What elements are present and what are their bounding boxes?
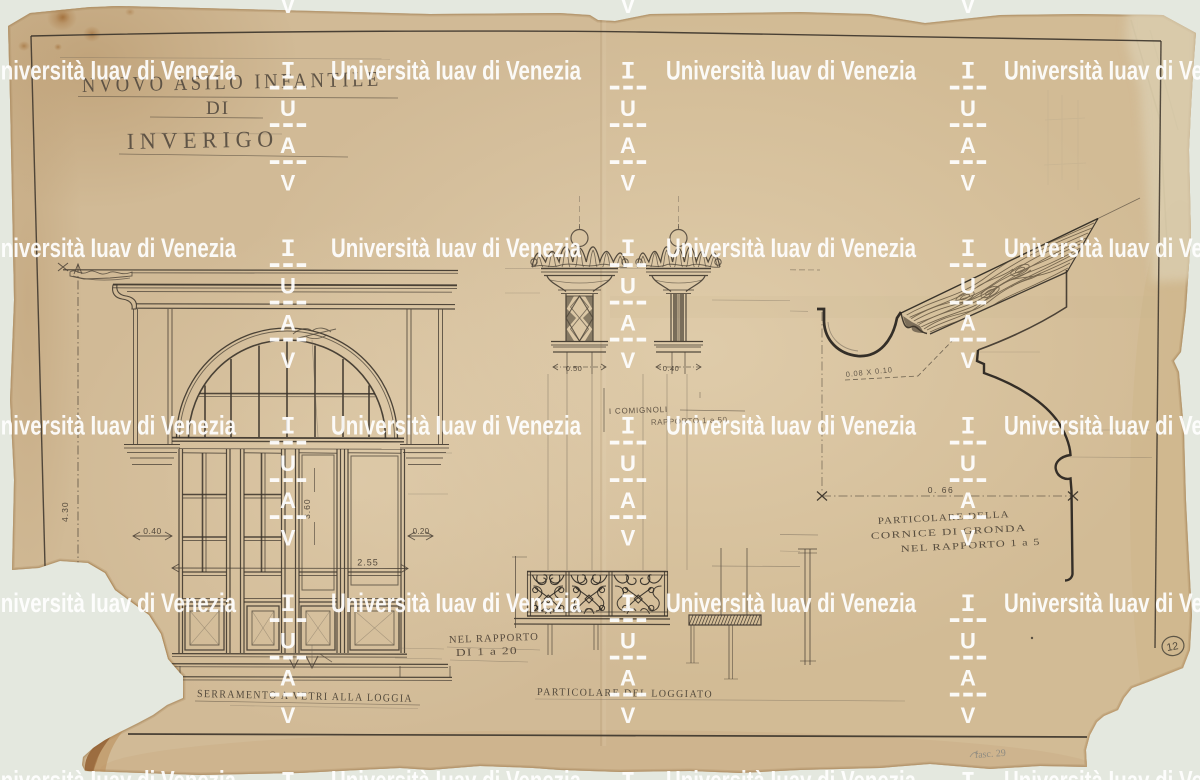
svg-text:Università Iuav di Venezia: Università Iuav di Venezia	[1004, 588, 1200, 618]
svg-text:Università Iuav di Venezia: Università Iuav di Venezia	[0, 766, 237, 780]
svg-text:A: A	[960, 133, 976, 158]
svg-text:V: V	[961, 0, 976, 18]
svg-text:U: U	[280, 274, 296, 299]
svg-text:V: V	[961, 703, 976, 728]
svg-text:A: A	[280, 666, 296, 691]
svg-text:V: V	[961, 171, 976, 196]
svg-text:Università Iuav di Venezia: Università Iuav di Venezia	[1004, 766, 1200, 780]
svg-text:Università Iuav di Venezia: Università Iuav di Venezia	[0, 233, 237, 263]
svg-text:INVERIGO: INVERIGO	[127, 126, 279, 154]
svg-text:U: U	[960, 629, 976, 654]
svg-text:A: A	[280, 311, 296, 336]
svg-text:U: U	[960, 96, 976, 121]
svg-text:I: I	[960, 413, 975, 442]
svg-text:U: U	[960, 451, 976, 476]
svg-text:Università Iuav di Venezia: Università Iuav di Venezia	[1004, 233, 1200, 263]
svg-text:I: I	[280, 58, 295, 87]
svg-text:fasc. 29: fasc. 29	[974, 748, 1006, 761]
svg-text:Università Iuav di Venezia: Università Iuav di Venezia	[331, 766, 582, 780]
svg-text:A: A	[960, 666, 976, 691]
svg-text:V: V	[621, 171, 636, 196]
svg-text:0. 66: 0. 66	[928, 485, 954, 495]
svg-text:U: U	[280, 629, 296, 654]
svg-text:U: U	[620, 274, 636, 299]
svg-text:0.50: 0.50	[566, 364, 583, 373]
svg-text:I: I	[280, 413, 295, 442]
svg-text:V: V	[281, 171, 296, 196]
svg-text:A: A	[620, 133, 636, 158]
svg-text:I: I	[280, 590, 295, 619]
svg-text:Università Iuav di Venezia: Università Iuav di Venezia	[666, 233, 917, 263]
svg-text:U: U	[620, 629, 636, 654]
svg-text:Università Iuav di Venezia: Università Iuav di Venezia	[1004, 411, 1200, 441]
svg-text:V: V	[621, 703, 636, 728]
svg-text:I: I	[620, 768, 635, 780]
svg-text:A: A	[620, 311, 636, 336]
svg-text:V: V	[961, 348, 976, 373]
svg-text:U: U	[620, 96, 636, 121]
svg-text:V: V	[961, 526, 976, 551]
svg-text:Università Iuav di Venezia: Università Iuav di Venezia	[0, 411, 237, 441]
svg-text:I: I	[620, 590, 635, 619]
svg-text:I: I	[280, 768, 295, 780]
svg-text:A: A	[620, 666, 636, 691]
svg-text:Università Iuav di Venezia: Università Iuav di Venezia	[331, 588, 582, 618]
svg-text:Università Iuav di Venezia: Università Iuav di Venezia	[0, 56, 237, 86]
svg-text:U: U	[620, 451, 636, 476]
svg-text:4.30: 4.30	[60, 501, 70, 522]
svg-text:0.20: 0.20	[413, 527, 430, 536]
svg-text:A: A	[620, 488, 636, 513]
svg-text:A: A	[960, 311, 976, 336]
svg-text:Università Iuav di Venezia: Università Iuav di Venezia	[331, 411, 582, 441]
svg-text:V: V	[281, 703, 296, 728]
svg-text:Università Iuav di Venezia: Università Iuav di Venezia	[331, 233, 582, 263]
svg-text:0.40: 0.40	[663, 364, 680, 373]
svg-text:I: I	[280, 235, 295, 264]
svg-text:I: I	[960, 590, 975, 619]
svg-text:12: 12	[1166, 640, 1180, 654]
svg-text:Università Iuav di Venezia: Università Iuav di Venezia	[666, 56, 917, 86]
svg-text:Università Iuav di Venezia: Università Iuav di Venezia	[666, 411, 917, 441]
svg-text:Università Iuav di Venezia: Università Iuav di Venezia	[1004, 56, 1200, 86]
svg-text:I: I	[960, 235, 975, 264]
svg-text:V: V	[281, 0, 296, 18]
svg-text:2.55: 2.55	[357, 558, 379, 568]
svg-text:A: A	[280, 133, 296, 158]
svg-text:V: V	[281, 348, 296, 373]
svg-text:DI: DI	[206, 98, 230, 119]
svg-text:U: U	[280, 96, 296, 121]
svg-text:Università Iuav di Venezia: Università Iuav di Venezia	[666, 588, 917, 618]
svg-text:I: I	[960, 768, 975, 780]
svg-text:I: I	[960, 58, 975, 87]
svg-text:A: A	[280, 488, 296, 513]
svg-text:Università Iuav di Venezia: Università Iuav di Venezia	[331, 56, 582, 86]
svg-text:V: V	[621, 526, 636, 551]
svg-text:Università Iuav di Venezia: Università Iuav di Venezia	[666, 766, 917, 780]
svg-text:U: U	[280, 451, 296, 476]
svg-text:V: V	[621, 0, 636, 18]
svg-text:A: A	[960, 488, 976, 513]
svg-text:U: U	[960, 274, 976, 299]
svg-text:I: I	[620, 58, 635, 87]
svg-text:0.40: 0.40	[143, 526, 162, 536]
svg-text:I: I	[620, 235, 635, 264]
svg-text:V: V	[281, 526, 296, 551]
svg-text:I: I	[620, 413, 635, 442]
svg-text:V: V	[621, 348, 636, 373]
svg-text:Università Iuav di Venezia: Università Iuav di Venezia	[0, 588, 237, 618]
